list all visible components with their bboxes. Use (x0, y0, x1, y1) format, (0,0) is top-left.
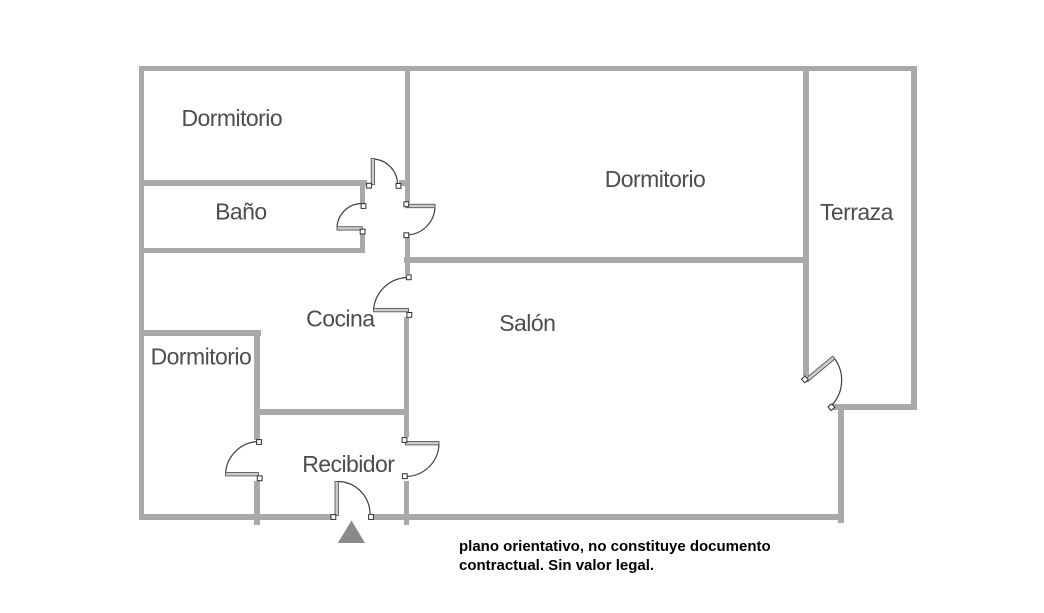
svg-text:Dormitorio: Dormitorio (151, 343, 252, 369)
svg-text:contractual. Sin valor legal.: contractual. Sin valor legal. (459, 557, 654, 574)
svg-text:plano orientativo, no constitu: plano orientativo, no constituye documen… (459, 538, 771, 555)
svg-text:Recibidor: Recibidor (302, 451, 395, 477)
svg-text:Dormitorio: Dormitorio (182, 105, 283, 131)
svg-text:Dormitorio: Dormitorio (605, 166, 706, 192)
svg-text:Cocina: Cocina (306, 305, 375, 331)
svg-text:Baño: Baño (215, 199, 267, 225)
svg-text:Salón: Salón (499, 310, 555, 336)
svg-text:Terraza: Terraza (820, 199, 894, 225)
